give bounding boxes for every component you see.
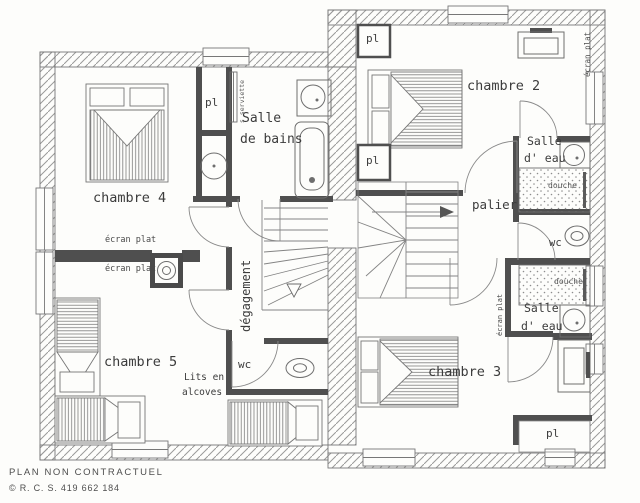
tv-label-chambre2: écran plat (584, 32, 592, 77)
bed-single-alcove-1 (55, 298, 100, 396)
closet-label-pl-chambre2-haut: pl (366, 33, 379, 44)
window (586, 72, 603, 124)
room-label-chambre-2: chambre 2 (467, 80, 540, 94)
closet-label-pl-chambre2-bas: pl (366, 155, 379, 166)
room-label-degagement: dégagement (240, 260, 252, 332)
footer-registration: © R. C. S. 419 662 184 (9, 484, 120, 493)
pillow (361, 372, 378, 403)
floor-plan: chambre 4 chambre 5 chambre 2 chambre 3 … (0, 0, 640, 503)
room-label-salle-eau-haut-line1: Salle (527, 136, 562, 148)
window (363, 449, 415, 466)
shower-label-bas: douche (554, 278, 583, 286)
window (36, 252, 53, 314)
window (203, 48, 249, 65)
room-label-salle-eau-bas-line2: d' eau (521, 321, 563, 333)
tv-label-chambre4: écran plat (105, 236, 156, 245)
window (36, 188, 53, 250)
room-label-wc-left: wc (238, 359, 251, 370)
bed-double-chambre-4 (86, 84, 168, 182)
shower-area-haut (519, 168, 590, 212)
room-label-chambre-5: chambre 5 (104, 356, 177, 370)
pillow (372, 111, 389, 144)
pillow (130, 88, 164, 106)
bed-single-alcove-3 (228, 400, 322, 446)
alcove-beds-label-line2: alcoves (182, 388, 222, 398)
tv-label-chambre5: écran plat (105, 265, 156, 274)
pillow (372, 75, 389, 108)
shower-label-haut: douche (548, 182, 577, 190)
pillow (361, 341, 378, 370)
bed-double-chambre-2 (368, 70, 462, 148)
room-label-wc-right: wc (549, 238, 562, 249)
shower-door (583, 172, 586, 208)
pillow (90, 88, 124, 106)
room-label-chambre-4: chambre 4 (93, 192, 166, 206)
closet-label-pl-chambre3: pl (546, 428, 559, 439)
bed-single-alcove-2 (55, 396, 145, 443)
window (448, 6, 508, 23)
closet-label-pl-column: pl (205, 97, 218, 108)
room-label-salle-de-bains-line1: Salle (242, 112, 281, 125)
window (545, 449, 575, 466)
tv-label-chambre3: écran plat (497, 294, 504, 336)
alcove-beds-label-line1: Lits en (184, 373, 224, 383)
window (112, 441, 168, 458)
toilet-icon-wc-left (286, 359, 314, 378)
room-label-salle-eau-haut-line2: d' eau (524, 153, 566, 165)
towel-radiator-label: s serviette (239, 80, 246, 123)
toilet-icon-wc-right (565, 226, 589, 246)
room-label-salle-eau-bas-line1: Salle (524, 303, 559, 315)
footer-disclaimer: PLAN NON CONTRACTUEL (9, 468, 163, 478)
shower-door (583, 269, 586, 301)
floor-plan-drawing (0, 0, 640, 503)
room-label-chambre-3: chambre 3 (428, 366, 501, 380)
room-label-salle-de-bains-line2: de bains (240, 133, 303, 146)
room-label-palier: palier (472, 199, 517, 212)
